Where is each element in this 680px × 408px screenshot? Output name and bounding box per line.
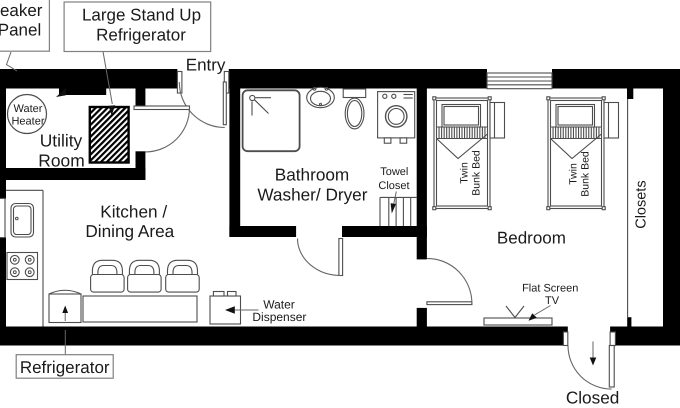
svg-text:Closed: Closed <box>566 388 620 408</box>
svg-text:Flat Screen: Flat Screen <box>522 282 578 294</box>
svg-text:Water: Water <box>14 103 43 115</box>
svg-text:TV: TV <box>545 295 560 307</box>
svg-text:Twin: Twin <box>459 162 471 184</box>
svg-text:Closet: Closet <box>378 180 409 192</box>
svg-text:Washer/ Dryer: Washer/ Dryer <box>257 185 367 205</box>
svg-text:Heater: Heater <box>11 115 44 127</box>
svg-text:Bunk Bed: Bunk Bed <box>471 150 483 196</box>
svg-text:Refrigerator: Refrigerator <box>96 26 186 45</box>
svg-text:Closets: Closets <box>633 180 649 228</box>
svg-text:Utility: Utility <box>40 131 83 151</box>
svg-text:Bathroom: Bathroom <box>275 165 350 185</box>
svg-text:Refrigerator: Refrigerator <box>20 358 110 377</box>
svg-text:Dining Area: Dining Area <box>85 221 174 241</box>
svg-text:Bedroom: Bedroom <box>497 229 566 248</box>
svg-text:Entry: Entry <box>186 55 226 74</box>
svg-text:Large Stand Up: Large Stand Up <box>82 6 201 25</box>
svg-text:Room: Room <box>38 151 84 171</box>
svg-text:Bunk Bed: Bunk Bed <box>580 151 592 197</box>
svg-text:Panel: Panel <box>0 21 41 40</box>
svg-text:Dispenser: Dispenser <box>252 310 306 324</box>
svg-text:Kitchen /: Kitchen / <box>100 201 167 221</box>
svg-text:Towel: Towel <box>380 166 408 178</box>
svg-text:Breaker: Breaker <box>0 1 43 20</box>
svg-text:Twin: Twin <box>568 163 580 185</box>
